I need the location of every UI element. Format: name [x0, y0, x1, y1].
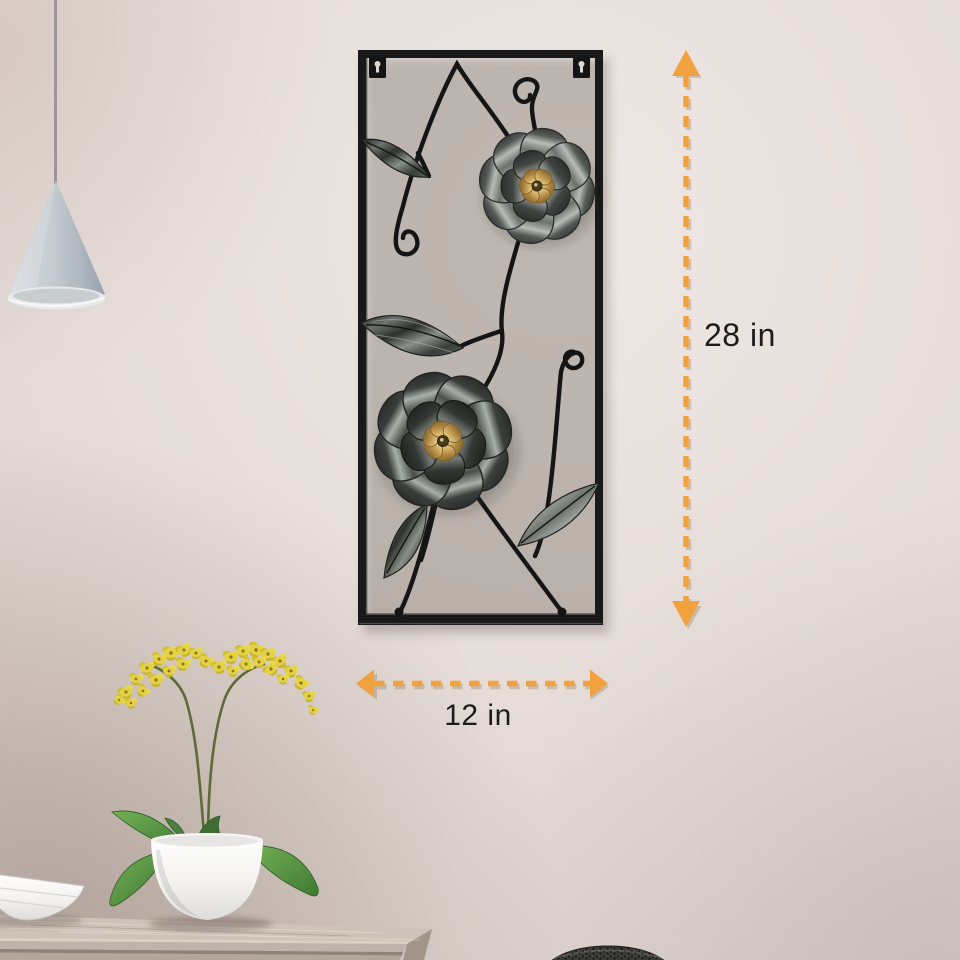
product-image: 28 in 12 in	[0, 0, 960, 960]
wall-art	[358, 50, 609, 633]
keyhole-hanger-right	[573, 57, 590, 78]
lamp-cord	[54, 0, 57, 184]
height-label: 28 in	[704, 317, 776, 354]
keyhole-hanger-left	[369, 57, 386, 78]
scene-canvas	[0, 0, 960, 960]
width-label: 12 in	[430, 699, 526, 733]
